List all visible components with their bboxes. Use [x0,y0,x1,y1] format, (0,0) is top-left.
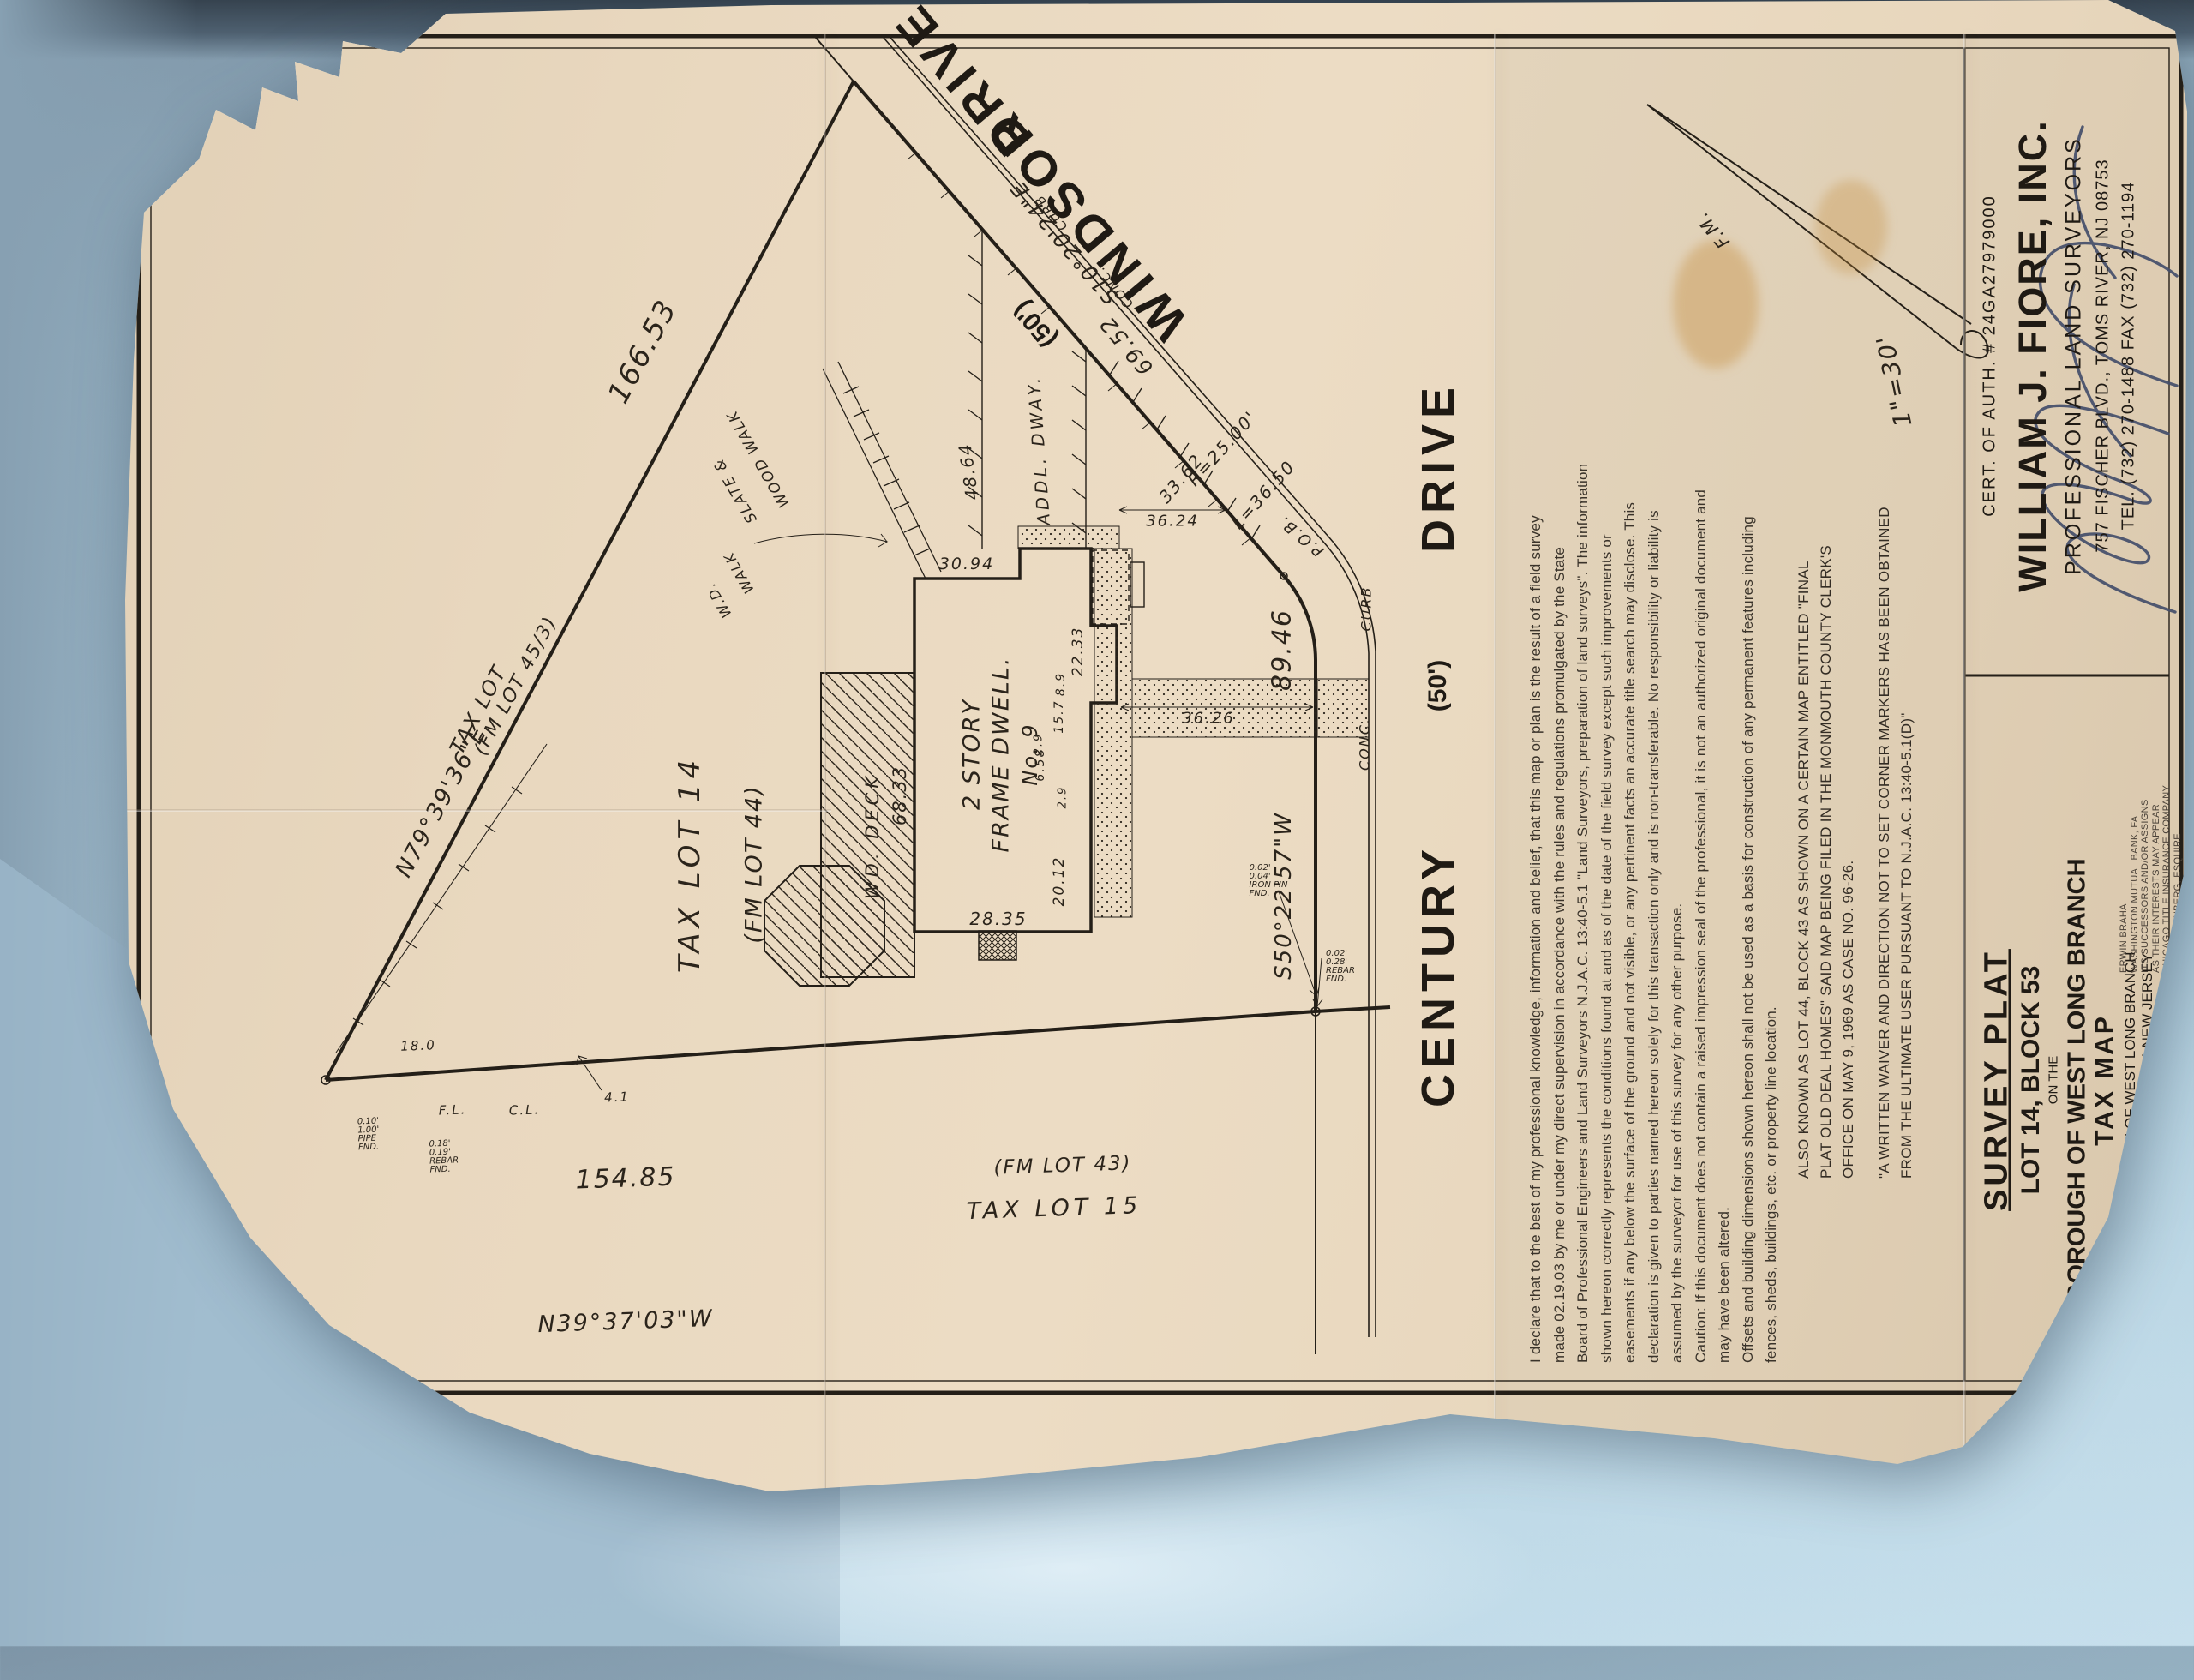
also-known-note: ALSO KNOWN AS LOT 44, BLOCK 43 AS SHOWN … [1793,321,1860,1179]
curb-label-conc-century: CONC. [1357,717,1373,771]
repeated-line: AS THEIR INTERESTS MAY APPEAR [2151,785,2162,973]
title-tax-map: TAX MAP [2090,1014,2119,1146]
repeated-line: FND. [1326,975,1355,984]
dim-jog5: 2.9 [1033,733,1046,756]
fold-crease [1494,34,1496,1611]
dim-jog4: 2.9 [1057,786,1070,809]
firm-address: 757 FISCHER BLVD., TOMS RIVER, NJ 08753 [2094,159,2113,552]
stain [1815,180,1887,274]
dim-to-century: 36.26 [1182,710,1235,728]
wood-deck [764,673,914,986]
title-on-the: ON THE [2047,1056,2061,1104]
monument-west-a: 0.10'1.00'PIPEFND. [357,1118,380,1153]
firm-profession: PROFESSIONAL LAND SURVEYORS [2062,136,2087,575]
declaration-text: I declare that to the best of my profess… [1524,283,1783,1363]
repeated-line: CHICAGO TITLE INSURANCE COMPANY [2161,785,2173,973]
repeated-line: ALSO KNOWN AS LOT 44, BLOCK 43 AS SHOWN … [1793,321,1815,1179]
repeated-line: I declare that to the best of my profess… [1524,283,1548,1363]
dim-front-right: 22.33 [1070,627,1087,677]
repeated-line: DAVID EISENBERG, ESQUIRE [2173,785,2184,973]
fold-crease [824,34,826,1611]
repeated-line: PLAT OLD DEAL HOMES" SAID MAP BEING FILE… [1815,321,1837,1179]
paper-wrap: WINDSOR DRIVE (50') CENTURY (50') DRIVE … [0,0,2194,1646]
repeated-line: fences, sheds, buildings, etc. or proper… [1759,283,1783,1363]
title-lot-block: LOT 14, BLOCK 53 [2017,966,2046,1195]
house-label-2: FRAME DWELL. [988,657,1015,853]
monument-west-b: 0.18'0.19'REBARFND. [429,1139,459,1174]
curb-label-curb-century: CURB [1358,586,1375,632]
fence-line [336,744,602,1090]
dim-front-left: 20.12 [1051,856,1068,907]
survey-plat-paper: WINDSOR DRIVE (50') CENTURY (50') DRIVE … [0,0,2194,1646]
dim-house-left: 28.35 [969,909,1027,929]
repeated-line: Caution: If this document does not conta… [1689,283,1713,1363]
title-survey-plat: SURVEY PLAT [1979,949,2016,1211]
waiver-note: "A WRITTEN WAIVER AND DIRECTION NOT TO S… [1873,321,1918,1179]
lot14-label: TAX LOT 14 [673,755,707,974]
title-to-label: TO: [2155,1003,2167,1020]
street-label-century: CENTURY [1412,843,1465,1107]
repeated-line: ITS SUCCESSORS AND/OR ASSIGNS [2140,785,2151,973]
title-recipients: ERWIN BRAHAWASHINGTON MUTUAL BANK, FAITS… [2119,785,2183,973]
dim-house-top: 68.33 [890,765,910,825]
chimney [979,931,1016,960]
dim-to-windsor: 36.24 [1146,513,1199,531]
repeated-line: FND. [1250,890,1288,898]
repeated-line: OFFICE ON MAY 9, 1969 AS CASE NO. 96-26. [1837,321,1860,1179]
photo-of-survey-plat: { "plat": { "streets": { "windsor": { "n… [0,0,2194,1646]
title-borough: BOROUGH OF WEST LONG BRANCH [2064,858,2092,1301]
distance-west-line: 154.85 [575,1161,676,1195]
house-label-1: 2 STORY [959,699,986,810]
distance-century-frontage: 89.46 [1268,609,1298,691]
repeated-line: may have been altered. [1712,283,1736,1363]
repeated-line: FROM THE ULTIMATE USER PURSUANT TO N.J.A… [1896,321,1918,1179]
firm-name: WILLIAM J. FIORE, INC. [2011,119,2055,591]
repeated-line: Offsets and building dimensions shown he… [1736,283,1760,1363]
repeated-line: WASHINGTON MUTUAL BANK, FA [2130,785,2141,973]
repeated-line: "A WRITTEN WAIVER AND DIRECTION NOT TO S… [1873,321,1896,1179]
dim-jog1: 8.9 [1054,672,1068,696]
repeated-line: shown hereon correctly represents the co… [1595,283,1619,1363]
repeated-line: ERWIN BRAHA [2119,785,2130,973]
fence-label-fl: F.L. [438,1101,466,1118]
plat-sheet-rotated: WINDSOR DRIVE (50') CENTURY (50') DRIVE … [77,34,2185,1611]
firm-phones: TEL. (732) 270-1488 FAX (732) 270-1194 [2119,182,2139,531]
dim-house-right: 30.94 [939,555,994,573]
monument-sw-a: 0.02'0.28'REBARFND. [1326,950,1355,984]
repeated-line: Board of Professional Engineers and Land… [1571,283,1595,1363]
fold-crease-vertical [77,809,831,812]
repeated-line: made 02.19.03 by me or under my direct s… [1548,283,1572,1363]
street-label-century-type: DRIVE [1412,381,1465,553]
corner-offset: 18.0 [400,1037,436,1053]
title-sub1: BOROUGH OF WEST LONG BRANCH [2122,951,2139,1208]
firm-cert: CERT. OF AUTH. # 24GA27979000 [1981,195,2000,517]
dim-jog2: 15.7 [1052,699,1066,733]
repeated-line: declaration is given to parties named he… [1642,283,1666,1363]
repeated-line: assumed by the surveyor for use of this … [1665,283,1689,1363]
street-width-century: (50') [1424,660,1453,711]
repeated-line: FND. [429,1165,459,1174]
repeated-line: easements if any below the surface of th… [1618,283,1642,1363]
lot14-sublabel: (FM LOT 44) [741,784,768,943]
fold-crease [1963,34,1966,1611]
repeated-line: FND. [358,1143,380,1153]
title-sub2: MONMOUTH COUNTY, NEW JERSEY [2139,953,2156,1207]
slate-wood-walk [754,362,941,579]
fence-label-cl: C.L. [509,1101,541,1118]
deck-label: WD. DECK [862,772,883,899]
fence-offset: 4.1 [604,1089,630,1105]
monument-sw-b: 0.02'0.04'IRON PINFND. [1250,864,1288,898]
